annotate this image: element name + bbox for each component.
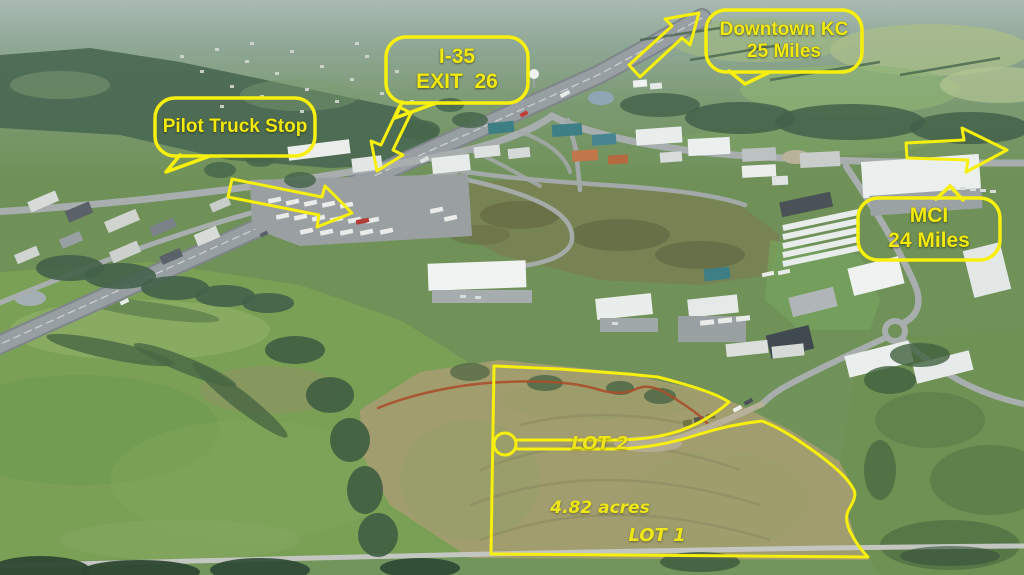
water-tower (529, 69, 539, 79)
pond (588, 91, 614, 105)
aerial-photo (0, 0, 1024, 575)
center-warehouse (428, 260, 527, 290)
aerial-real-estate-photo: Pilot Truck Stop I-35 EXIT 26 Downtown K… (0, 0, 1024, 575)
